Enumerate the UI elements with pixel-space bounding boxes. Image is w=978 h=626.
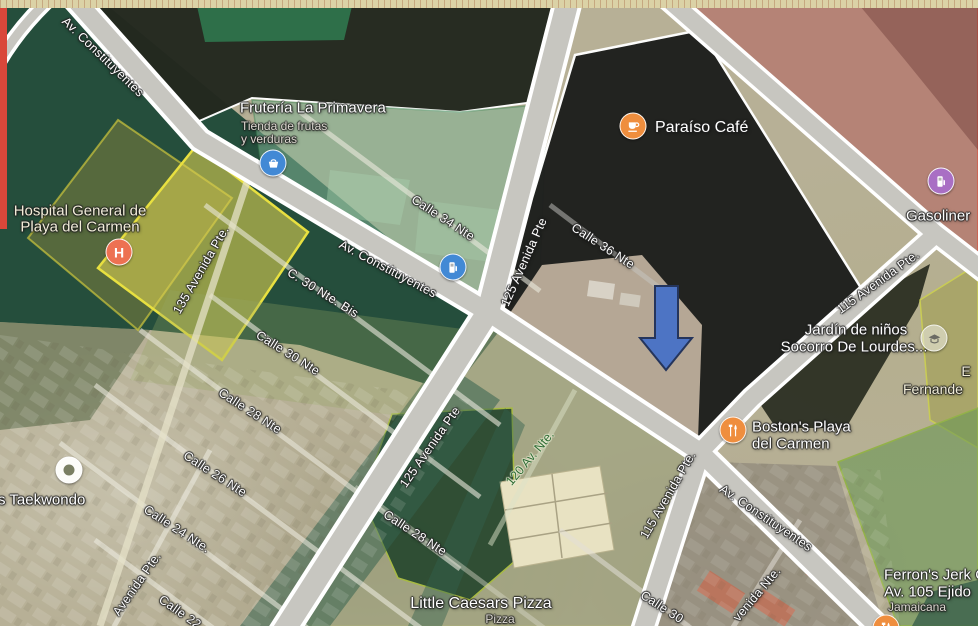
fuel-pump-icon bbox=[446, 260, 460, 274]
fuel-pump-icon bbox=[934, 174, 948, 188]
poi-sublabel-fruteria-2: y verduras bbox=[241, 132, 297, 146]
satellite-map-layer bbox=[0, 0, 978, 626]
poi-label-bostons-2[interactable]: del Carmen bbox=[752, 436, 830, 453]
annotation-arrow-down bbox=[628, 280, 706, 378]
poi-label-ferrons-1[interactable]: Ferron's Jerk Chi bbox=[884, 567, 978, 584]
grocery-marker-fruteria[interactable] bbox=[260, 150, 287, 177]
poi-label-fruteria[interactable]: Frutería La Primavera bbox=[240, 100, 386, 117]
poi-sublabel-little-caesars: Pizza bbox=[485, 612, 514, 626]
dot-icon bbox=[64, 465, 75, 476]
region-sports-field bbox=[197, 6, 352, 42]
top-border-bar bbox=[0, 0, 978, 8]
area-label-hospital-2[interactable]: Playa del Carmen bbox=[20, 219, 139, 236]
gas-station-marker-blue[interactable] bbox=[440, 254, 467, 281]
restaurant-marker-bostons[interactable] bbox=[720, 417, 747, 444]
fork-knife-icon bbox=[726, 423, 740, 437]
hospital-marker[interactable]: H bbox=[106, 239, 133, 266]
gas-station-marker-purple[interactable] bbox=[928, 168, 955, 195]
area-label-fernande-2: Fernande bbox=[903, 381, 963, 397]
hospital-h-glyph: H bbox=[114, 244, 124, 260]
poi-label-taekwondo[interactable]: s Taekwondo bbox=[0, 492, 85, 509]
coffee-cup-icon bbox=[626, 119, 640, 133]
poi-label-paraiso-cafe[interactable]: Paraíso Café bbox=[655, 119, 748, 137]
area-label-fernande-1: E bbox=[961, 363, 970, 379]
map-canvas[interactable]: Av. Constituyentes Av. Constituyentes Av… bbox=[0, 0, 978, 626]
poi-label-jardin-2[interactable]: Socorro De Lourdes... bbox=[781, 339, 928, 356]
school-icon bbox=[927, 331, 941, 345]
poi-label-jardin-1[interactable]: Jardín de niños bbox=[805, 322, 908, 339]
poi-label-ferrons-2[interactable]: Av. 105 Ejido bbox=[884, 584, 971, 601]
poi-label-bostons-1[interactable]: Boston's Playa bbox=[752, 419, 851, 436]
poi-dot-marker-taekwondo[interactable] bbox=[56, 457, 83, 484]
poi-label-gasolinera[interactable]: Gasoliner bbox=[906, 208, 970, 225]
fork-knife-icon bbox=[879, 621, 893, 626]
cafe-marker-paraiso[interactable] bbox=[620, 113, 647, 140]
area-label-hospital-1[interactable]: Hospital General de bbox=[14, 203, 147, 220]
poi-label-little-caesars[interactable]: Little Caesars Pizza bbox=[410, 595, 551, 613]
shopping-basket-icon bbox=[266, 156, 280, 170]
poi-sublabel-ferrons: Jamaicana bbox=[888, 600, 946, 614]
poi-sublabel-fruteria-1: Tienda de frutas bbox=[241, 119, 327, 133]
left-red-border-bar bbox=[0, 8, 7, 229]
